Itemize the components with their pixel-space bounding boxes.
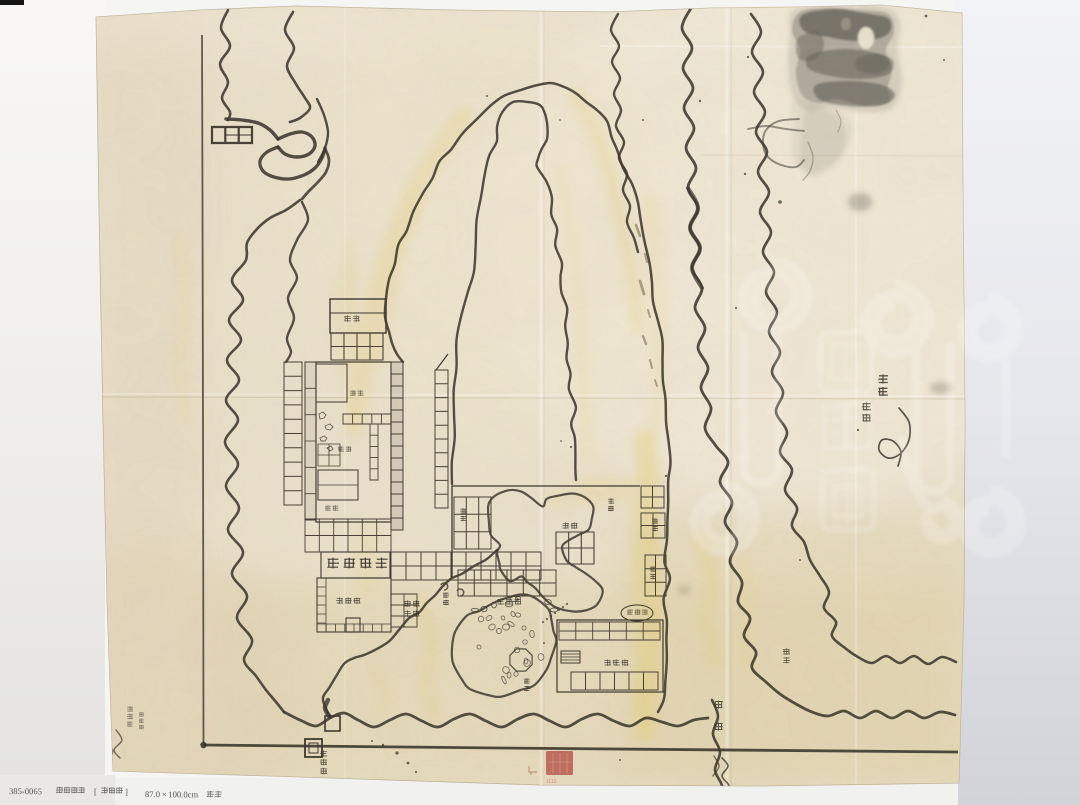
svg-text:385-0065: 385-0065 [9,786,42,796]
svg-text:1110: 1110 [546,779,557,785]
svg-text:87.0 × 100.0cm: 87.0 × 100.0cm [145,789,199,799]
svg-text:]: ] [125,787,128,797]
svg-text:[: [ [94,787,97,797]
